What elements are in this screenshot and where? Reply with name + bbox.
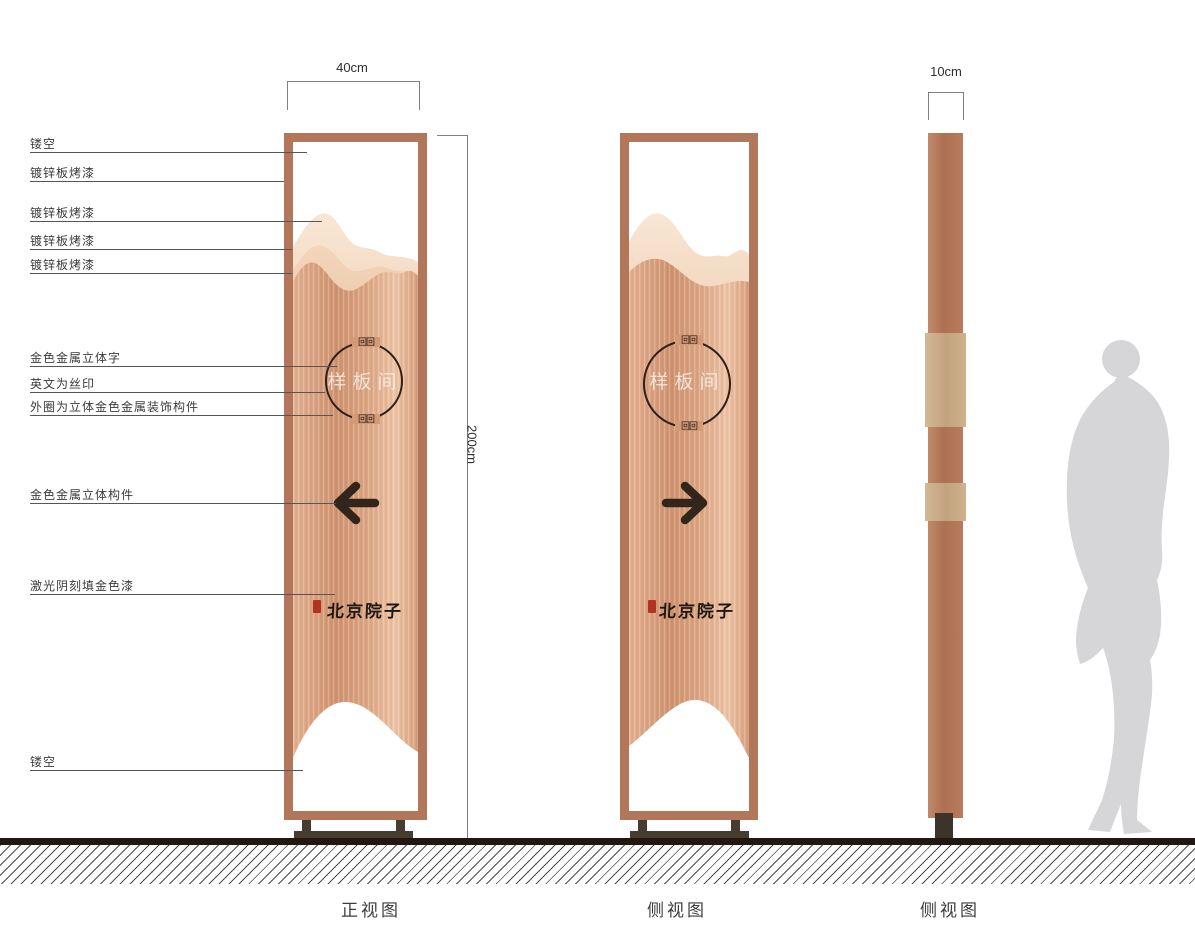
callout-hollow-top: 镂空	[30, 135, 56, 152]
ground-line	[0, 838, 1195, 845]
leader-line-outer-ring	[30, 415, 333, 416]
view-label-front: 正视图	[318, 896, 424, 921]
callout-galvanized-paint-3: 镀锌板烤漆	[30, 232, 95, 249]
side-profile-foot	[935, 813, 953, 840]
arrow-right-icon	[661, 480, 711, 526]
silhouette-head	[1102, 340, 1140, 378]
front-red-seal	[313, 600, 321, 613]
leader-line-laser-engraved	[30, 594, 335, 595]
front-silkscreen-english: · · · · · · · ·	[330, 386, 400, 392]
dim-200-tick-top	[437, 135, 467, 136]
side-profile-protrusion-medallion	[925, 333, 966, 427]
front-pylon-artboard	[293, 142, 418, 811]
middle-pylon-artwork	[629, 142, 749, 811]
front-medallion-ornament-bottom: 回回	[352, 414, 380, 424]
leader-line-english-silkscreen	[30, 392, 325, 393]
silhouette-body	[1067, 374, 1169, 834]
side-profile-column	[928, 133, 963, 818]
middle-medallion-ornament-top: 回回	[675, 335, 703, 345]
dim-40-tick-right	[419, 81, 420, 110]
dim-40-tick-left	[287, 81, 288, 110]
callout-outer-ring-gold-ornament: 外圈为立体金色金属装饰构件	[30, 398, 199, 415]
leader-line-galvanized-2	[30, 221, 322, 222]
dim-40-bracket-top	[287, 81, 420, 82]
dimension-side-depth: 10cm	[906, 64, 986, 79]
view-label-side-1: 侧视图	[624, 896, 730, 921]
view-label-side-2: 侧视图	[897, 896, 1003, 921]
dimension-total-height: 200cm	[465, 400, 480, 490]
callout-gold-metal-3d-characters: 金色金属立体字	[30, 349, 121, 366]
callout-galvanized-paint-1: 镀锌板烤漆	[30, 164, 95, 181]
side-profile-protrusion-arrow	[925, 483, 966, 521]
front-medallion-ornament-top: 回回	[352, 337, 380, 347]
dim-10-tick-right	[963, 92, 964, 120]
dim-10-bracket-top	[928, 92, 964, 93]
callout-english-silkscreen: 英文为丝印	[30, 375, 95, 392]
callout-galvanized-paint-2: 镀锌板烤漆	[30, 204, 95, 221]
leader-line-galvanized-3	[30, 249, 292, 250]
ground-hatching	[0, 845, 1195, 884]
callout-gold-metal-3d-component: 金色金属立体构件	[30, 486, 134, 503]
leader-line-galvanized-4	[30, 273, 292, 274]
middle-silkscreen-english: · · · · · · · ·	[652, 386, 722, 392]
dim-10-tick-left	[928, 92, 929, 120]
middle-red-seal	[648, 600, 656, 613]
middle-brand-calligraphy: 北京院子	[655, 597, 738, 622]
dimension-front-width: 40cm	[312, 60, 392, 75]
callout-hollow-bottom: 镂空	[30, 753, 56, 770]
front-pylon-artwork	[293, 142, 418, 811]
leader-line-galvanized-1	[30, 181, 284, 182]
human-scale-silhouette	[1032, 334, 1172, 839]
callout-laser-engraved-gold-paint: 激光阴刻填金色漆	[30, 577, 134, 594]
arrow-left-icon	[330, 480, 380, 526]
leader-line-hollow-top	[30, 152, 307, 153]
leader-line-hollow-bottom	[30, 770, 303, 771]
leader-line-gold-component	[30, 503, 336, 504]
front-brand-calligraphy: 北京院子	[321, 597, 408, 622]
callout-galvanized-paint-4: 镀锌板烤漆	[30, 256, 95, 273]
leader-line-gold-characters	[30, 366, 337, 367]
middle-pylon-artboard	[629, 142, 749, 811]
middle-medallion-ornament-bottom: 回回	[675, 421, 703, 431]
signage-design-drawing: 回回 回回 样板间 · · · · · · · · 北京院子	[0, 0, 1195, 927]
